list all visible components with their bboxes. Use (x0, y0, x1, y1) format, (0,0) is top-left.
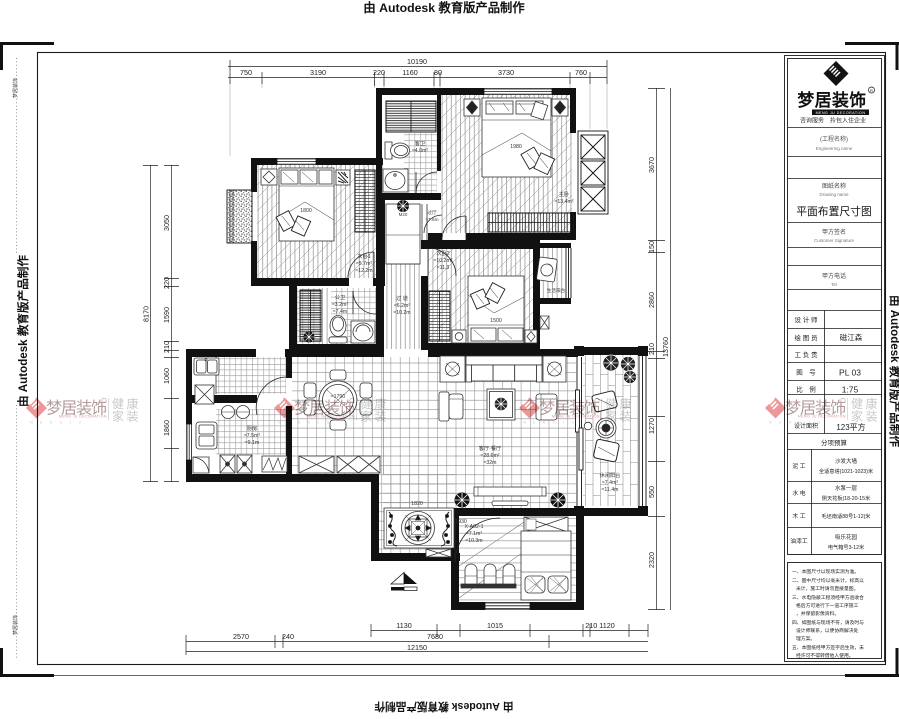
svg-text:≈11.4m: ≈11.4m (602, 487, 619, 493)
svg-text:泥 工: 泥 工 (792, 462, 805, 470)
svg-text:1160: 1160 (402, 68, 417, 77)
svg-text:客厅·餐厅: 客厅·餐厅 (479, 444, 501, 452)
svg-text:1860: 1860 (162, 420, 171, 436)
svg-text:经许可不得转借他人使用。: 经许可不得转借他人使用。 (796, 652, 854, 659)
svg-text:3730: 3730 (498, 68, 514, 77)
svg-text:≈4.0m²: ≈4.0m² (412, 148, 428, 154)
svg-text:(工程名称): (工程名称) (820, 135, 848, 143)
svg-text:MENG JU DECORATION: MENG JU DECORATION (307, 415, 355, 419)
svg-text:次卧1: 次卧1 (357, 252, 370, 260)
svg-text:次卧2: 次卧2 (436, 249, 449, 257)
svg-text:梦居装饰: 梦居装饰 (12, 78, 19, 98)
svg-text:四、如图纸与现场不符，请及时与: 四、如图纸与现场不符，请及时与 (792, 619, 864, 626)
svg-text:电气箱号3-12米: 电气箱号3-12米 (828, 543, 865, 551)
svg-text:≈7.5m²: ≈7.5m² (244, 433, 260, 439)
svg-text:M20: M20 (399, 212, 408, 217)
svg-text:3670: 3670 (647, 157, 656, 173)
svg-text:家装: 家装 (112, 409, 141, 424)
svg-text:毛坯南适88号1-12(米: 毛坯南适88号1-12(米 (821, 512, 871, 520)
svg-text:3050: 3050 (162, 215, 171, 231)
svg-text:水 电: 水 电 (792, 489, 805, 497)
svg-text:M E N G J U: M E N G J U (278, 421, 332, 425)
svg-text:123平方: 123平方 (836, 422, 865, 432)
svg-text:1820: 1820 (411, 501, 423, 507)
svg-text:≈9.1m: ≈9.1m (245, 440, 259, 446)
svg-text:咨询服务 拎包入住企业: 咨询服务 拎包入住企业 (800, 117, 866, 125)
svg-text:MENG JU DECORATION: MENG JU DECORATION (59, 415, 107, 419)
svg-text:≈10.2m: ≈10.2m (393, 310, 410, 316)
svg-text:比 例: 比 例 (796, 385, 816, 394)
svg-text:M E N G J U: M E N G J U (30, 421, 84, 425)
svg-text:理方案。: 理方案。 (796, 635, 815, 642)
svg-text:由 Autodesk 教育版产品制作: 由 Autodesk 教育版产品制作 (888, 295, 899, 447)
svg-text:MENG JU DECORATION: MENG JU DECORATION (552, 415, 600, 419)
svg-text:二、图中尺寸均以毫米计，标高以: 二、图中尺寸均以毫米计，标高以 (792, 577, 864, 584)
svg-text:甲方签名: 甲方签名 (822, 228, 846, 236)
svg-text:≈7.4m²: ≈7.4m² (602, 480, 618, 486)
svg-text:梦居装饰: 梦居装饰 (12, 615, 19, 635)
svg-text:210: 210 (162, 341, 171, 353)
svg-text:由 Autodesk 教育版产品制作: 由 Autodesk 教育版产品制作 (363, 0, 525, 15)
svg-text:1930: 1930 (455, 519, 467, 525)
svg-text:木 工: 木 工 (792, 512, 805, 520)
svg-text:1:75: 1:75 (842, 385, 859, 395)
svg-text:13760: 13760 (661, 337, 670, 357)
svg-text:X-A02-1: X-A02-1 (464, 524, 483, 530)
svg-text:1590: 1590 (162, 307, 171, 323)
svg-text:梦居装饰: 梦居装饰 (797, 90, 866, 110)
svg-text:220: 220 (162, 277, 171, 289)
svg-text:220: 220 (373, 68, 385, 77)
svg-text:水泵一层: 水泵一层 (835, 484, 858, 492)
svg-text:1130: 1130 (396, 621, 411, 630)
svg-text:侧天花板(18-20-15米: 侧天花板(18-20-15米 (822, 494, 871, 502)
svg-text:M E N G J U: M E N G J U (769, 421, 823, 425)
svg-text:图 号: 图 号 (796, 369, 816, 377)
svg-text:210 1120: 210 1120 (585, 621, 614, 630)
svg-text:≈10.3m: ≈10.3m (465, 538, 482, 544)
svg-text:甲方电话: 甲方电话 (822, 272, 846, 280)
svg-text:，并保留影像资料。: ，并保留影像资料。 (796, 610, 839, 617)
svg-text:沙发大墙: 沙发大墙 (835, 457, 858, 465)
svg-text:五、本图纸经甲方签字后生效，未: 五、本图纸经甲方签字后生效，未 (792, 644, 864, 651)
svg-text:1980: 1980 (510, 144, 522, 150)
svg-text:生活阳台: 生活阳台 (547, 287, 566, 294)
svg-text:全适意塔(1021-1023)米: 全适意塔(1021-1023)米 (819, 467, 874, 475)
svg-text:3190: 3190 (310, 68, 326, 77)
svg-text:≈13.4m²: ≈13.4m² (555, 199, 574, 205)
svg-text:设计师联系，以便协商解决处: 设计师联系，以便协商解决处 (796, 627, 859, 634)
svg-text:公卫: 公卫 (335, 294, 345, 301)
svg-text:≈12.2m: ≈12.2m (355, 268, 372, 274)
svg-text:家装: 家装 (605, 409, 634, 424)
svg-text:1015: 1015 (487, 621, 503, 630)
svg-text:1800: 1800 (300, 208, 312, 214)
svg-text:8170: 8170 (142, 306, 151, 322)
svg-text:≈10.2m²: ≈10.2m² (434, 258, 453, 264)
svg-text:磁江森: 磁江森 (840, 332, 863, 342)
svg-text:750: 750 (240, 68, 252, 77)
svg-text:≈32m: ≈32m (484, 460, 497, 466)
svg-text:Customer Signature: Customer Signature (814, 238, 855, 243)
svg-text:1500: 1500 (490, 318, 502, 324)
svg-text:过厅: 过厅 (427, 209, 437, 216)
svg-text:Tel: Tel (831, 282, 837, 287)
svg-text:150: 150 (647, 241, 656, 253)
svg-text:休闲阳台: 休闲阳台 (600, 471, 621, 479)
svg-text:M E N G J U: M E N G J U (523, 421, 577, 425)
svg-text:≈28.6m²: ≈28.6m² (481, 453, 500, 459)
svg-text:2320: 2320 (647, 552, 656, 568)
svg-text:工 负 责: 工 负 责 (794, 350, 818, 359)
svg-text:油漆工: 油漆工 (790, 537, 808, 545)
svg-text:客卫: 客卫 (415, 139, 425, 147)
svg-text:80: 80 (434, 68, 442, 77)
svg-text:240: 240 (282, 632, 294, 641)
svg-text:R: R (870, 88, 873, 93)
svg-text:PL 03: PL 03 (839, 368, 861, 378)
svg-text:≈7.4m: ≈7.4m (333, 309, 347, 315)
svg-text:550: 550 (647, 486, 656, 498)
svg-text:格后方可进行下一道工序施工: 格后方可进行下一道工序施工 (796, 602, 859, 609)
svg-text:平面布置尺寸图: 平面布置尺寸图 (796, 204, 872, 218)
svg-text:设 计 师: 设 计 师 (794, 315, 818, 324)
svg-text:MENG JU DECORATION: MENG JU DECORATION (816, 111, 866, 115)
svg-text:1270: 1270 (647, 418, 656, 434)
svg-text:2570: 2570 (233, 632, 249, 641)
svg-text:Drawing name: Drawing name (819, 192, 849, 197)
svg-text:2860: 2860 (647, 292, 656, 308)
svg-text:≈11.3: ≈11.3 (437, 265, 450, 271)
svg-text:图纸名称: 图纸名称 (822, 182, 846, 190)
svg-text:12150: 12150 (407, 643, 427, 652)
svg-text:过 道: 过 道 (396, 294, 408, 302)
svg-text:分项预算: 分项预算 (821, 438, 848, 447)
svg-text:家装: 家装 (360, 409, 389, 424)
svg-text:三、水电隐蔽工程须经甲方验收合: 三、水电隐蔽工程须经甲方验收合 (792, 594, 864, 601)
svg-text:厨房: 厨房 (247, 424, 257, 432)
svg-text:≈3.2m²: ≈3.2m² (332, 302, 348, 308)
svg-text:7680: 7680 (427, 632, 443, 641)
svg-text:10190: 10190 (407, 57, 427, 66)
svg-text:吸乐花园: 吸乐花园 (835, 533, 858, 541)
svg-text:1060: 1060 (162, 368, 171, 384)
svg-text:绘 图 员: 绘 图 员 (794, 333, 818, 342)
svg-text:米计，施工时请勿直接量图。: 米计，施工时请勿直接量图。 (796, 585, 858, 592)
svg-text:210: 210 (647, 343, 656, 355)
svg-text:≈7.1m²: ≈7.1m² (466, 531, 482, 537)
svg-text:由 Autodesk 教育版产品制作: 由 Autodesk 教育版产品制作 (16, 255, 30, 407)
svg-text:≈5.7m²: ≈5.7m² (356, 261, 372, 267)
svg-text:≈6.2m²: ≈6.2m² (394, 303, 410, 309)
svg-text:MENG JU DECORATION: MENG JU DECORATION (798, 415, 846, 419)
svg-text:760: 760 (575, 68, 587, 77)
svg-text:一、本图尺寸以现场实测为准。: 一、本图尺寸以现场实测为准。 (792, 568, 859, 575)
svg-text:家装: 家装 (851, 409, 880, 424)
svg-text:主卧: 主卧 (559, 190, 569, 198)
svg-text:Engineering name: Engineering name (816, 146, 853, 151)
svg-text:由 Autodesk 教育版产品制作: 由 Autodesk 教育版产品制作 (374, 700, 513, 713)
